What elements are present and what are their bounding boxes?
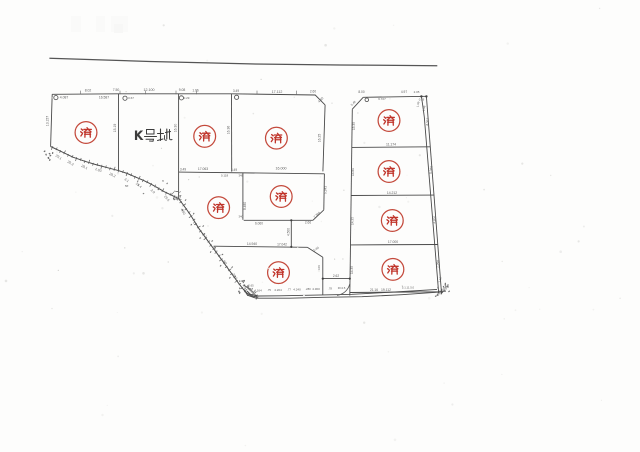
svg-text:16.30: 16.30	[173, 124, 177, 133]
svg-text:4.204: 4.204	[274, 288, 282, 292]
svg-text:3.49: 3.49	[231, 168, 237, 172]
svg-text:9.08: 9.08	[179, 88, 186, 92]
svg-text:2.65: 2.65	[248, 284, 254, 288]
svg-text:7.50: 7.50	[113, 88, 120, 92]
svg-text:6.727: 6.727	[378, 97, 386, 101]
svg-text:4.240: 4.240	[293, 287, 301, 291]
svg-text:1.96: 1.96	[192, 88, 198, 92]
svg-text:.280: .280	[305, 287, 311, 291]
svg-text:4.97: 4.97	[401, 90, 407, 94]
svg-text:2.05: 2.05	[414, 90, 420, 94]
svg-text:R=4.5: R=4.5	[338, 286, 346, 290]
svg-text:2.66: 2.66	[305, 221, 311, 225]
svg-text:.77: .77	[287, 288, 291, 292]
svg-text:15.19: 15.19	[113, 124, 117, 133]
svg-text:4.500: 4.500	[286, 228, 290, 236]
svg-text:16.000: 16.000	[276, 166, 287, 170]
svg-text:4.300: 4.300	[312, 287, 320, 291]
svg-text:8.02: 8.02	[85, 89, 92, 93]
svg-text:14.35: 14.35	[351, 217, 355, 225]
svg-text:12.100: 12.100	[144, 88, 155, 92]
svg-text:17.042: 17.042	[277, 243, 287, 247]
svg-text:2.60: 2.60	[310, 89, 316, 93]
svg-text:3.49: 3.49	[180, 168, 186, 172]
svg-text:15.35: 15.35	[352, 122, 356, 130]
svg-text:4.06: 4.06	[317, 265, 321, 271]
svg-text:7.11: 7.11	[438, 277, 443, 283]
svg-text:17.000: 17.000	[388, 240, 398, 244]
svg-text:340: 340	[238, 215, 243, 219]
svg-text:4.164: 4.164	[254, 288, 262, 292]
svg-text:11.174: 11.174	[386, 143, 396, 147]
svg-text:14.940: 14.940	[247, 242, 257, 246]
svg-text:17.063: 17.063	[198, 167, 208, 171]
svg-text:8.480: 8.480	[243, 202, 247, 210]
svg-text:17.112: 17.112	[272, 90, 283, 94]
svg-text:14.212: 14.212	[387, 191, 397, 195]
svg-text:19.112: 19.112	[381, 288, 391, 292]
svg-text:348: 348	[238, 174, 243, 178]
svg-text:3.49: 3.49	[233, 89, 239, 93]
svg-text:5.1.11.5.0: 5.1.11.5.0	[402, 286, 415, 290]
svg-text:14.80: 14.80	[351, 168, 355, 176]
svg-text:2.62: 2.62	[333, 274, 339, 278]
svg-text:1.296: 1.296	[435, 259, 440, 268]
svg-text:4.087: 4.087	[60, 95, 69, 99]
svg-text:16.36: 16.36	[226, 126, 230, 135]
svg-text:16.587: 16.587	[99, 96, 109, 100]
svg-text:5.243: 5.243	[323, 186, 327, 194]
svg-text:13.157: 13.157	[45, 116, 49, 126]
svg-text:14.35: 14.35	[350, 266, 354, 274]
svg-text:4.097: 4.097	[425, 117, 430, 126]
svg-text:K: K	[135, 129, 143, 143]
svg-text:5.086: 5.086	[429, 165, 434, 174]
svg-text:6.060: 6.060	[255, 221, 263, 225]
svg-text:0.118: 0.118	[221, 174, 229, 178]
svg-text:21.16: 21.16	[370, 288, 378, 292]
svg-text:8.00: 8.00	[358, 90, 364, 94]
svg-text:0.29: 0.29	[419, 97, 425, 101]
svg-text:16.25: 16.25	[318, 134, 322, 143]
svg-text:.78: .78	[328, 287, 332, 291]
svg-text:3.205: 3.205	[432, 215, 437, 224]
svg-text:0.29: 0.29	[184, 96, 190, 100]
svg-text:0.67: 0.67	[128, 96, 134, 100]
svg-text:.75: .75	[267, 288, 271, 292]
